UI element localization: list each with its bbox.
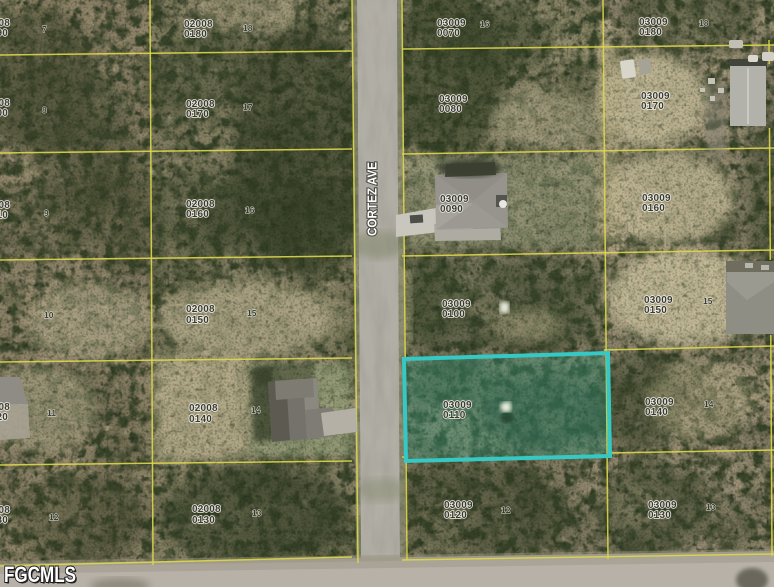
svg-text:0150: 0150 [186,315,209,326]
svg-text:0170: 0170 [186,109,209,120]
svg-text:0160: 0160 [642,203,665,214]
svg-text:0140: 0140 [645,407,668,418]
svg-text:0100: 0100 [442,309,465,320]
svg-text:15: 15 [703,296,713,306]
svg-text:FGCMLS: FGCMLS [4,562,76,587]
svg-text:13: 13 [252,508,262,518]
svg-text:0220: 0220 [0,412,8,423]
svg-text:0200: 0200 [0,108,8,119]
svg-text:0110: 0110 [443,410,466,421]
svg-text:8: 8 [42,105,47,115]
svg-text:0180: 0180 [184,29,207,40]
svg-text:02008: 02008 [189,403,218,414]
svg-text:14: 14 [251,405,261,415]
svg-text:14: 14 [704,399,714,409]
svg-text:02008: 02008 [186,304,215,315]
svg-text:0120: 0120 [444,510,467,521]
svg-text:13: 13 [706,502,716,512]
svg-text:CORTEZ AVE: CORTEZ AVE [366,162,380,236]
svg-text:18: 18 [243,23,253,33]
svg-text:16: 16 [480,19,490,29]
svg-text:0180: 0180 [639,27,662,38]
svg-text:17: 17 [243,102,253,112]
svg-text:0230: 0230 [0,515,8,526]
svg-text:0170: 0170 [641,101,664,112]
svg-text:02008: 02008 [192,504,221,515]
svg-text:0070: 0070 [437,28,460,39]
svg-text:16: 16 [245,205,255,215]
svg-text:18: 18 [699,18,709,28]
svg-text:0150: 0150 [644,305,667,316]
svg-text:0190: 0190 [0,28,8,39]
svg-text:0210: 0210 [0,210,8,221]
svg-text:0140: 0140 [189,414,212,425]
svg-text:10: 10 [44,310,54,320]
svg-text:11: 11 [47,408,56,418]
svg-text:12: 12 [49,512,59,522]
svg-text:0130: 0130 [192,515,215,526]
svg-text:9: 9 [44,208,49,218]
svg-text:0130: 0130 [648,510,671,521]
svg-text:12: 12 [501,505,511,515]
svg-text:7: 7 [42,24,47,34]
svg-text:15: 15 [247,308,257,318]
svg-text:0090: 0090 [440,204,463,215]
svg-text:0080: 0080 [439,104,462,115]
svg-text:0160: 0160 [186,209,209,220]
